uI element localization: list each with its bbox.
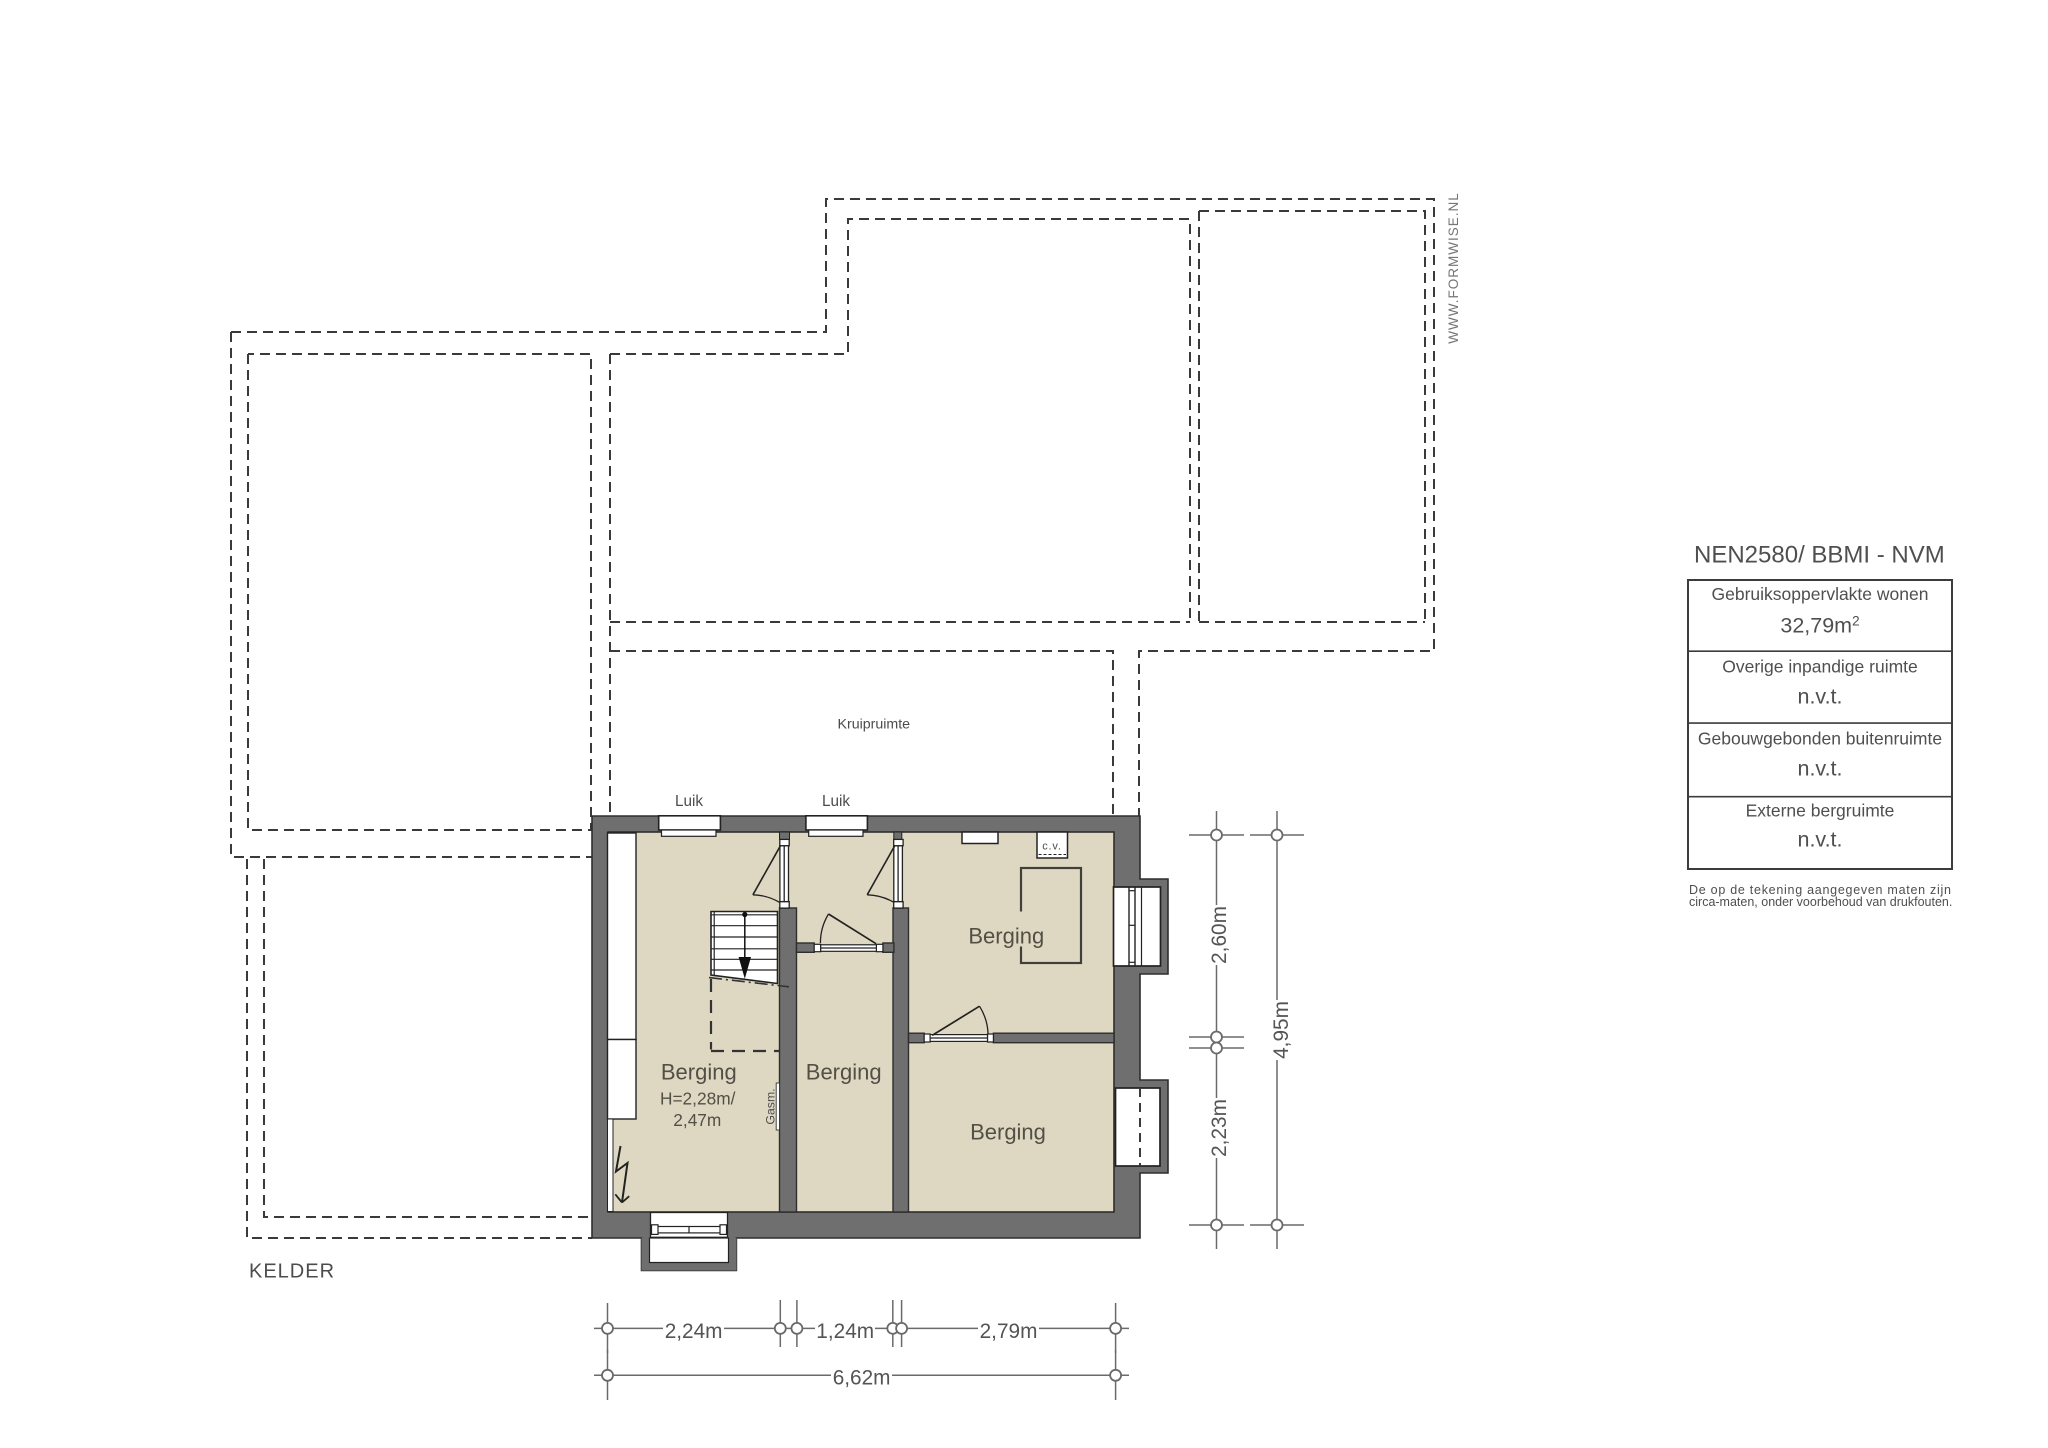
svg-text:32,79m2: 32,79m2 xyxy=(1780,614,1859,638)
svg-text:n.v.t.: n.v.t. xyxy=(1797,685,1842,709)
svg-text:Berging: Berging xyxy=(806,1060,882,1085)
svg-text:2,47m: 2,47m xyxy=(673,1110,721,1130)
svg-text:2,23m: 2,23m xyxy=(1208,1099,1231,1157)
svg-text:Overige inpandige ruimte: Overige inpandige ruimte xyxy=(1722,657,1918,677)
svg-text:Gebouwgebonden buitenruimte: Gebouwgebonden buitenruimte xyxy=(1698,728,1942,748)
svg-text:Luik: Luik xyxy=(822,793,850,810)
svg-text:2,60m: 2,60m xyxy=(1208,906,1231,964)
svg-text:n.v.t.: n.v.t. xyxy=(1797,757,1842,781)
svg-text:6,62m: 6,62m xyxy=(833,1367,891,1390)
svg-text:c.v.: c.v. xyxy=(1042,841,1062,853)
svg-text:Berging: Berging xyxy=(661,1060,737,1085)
svg-text:circa-maten, onder voorbehoud: circa-maten, onder voorbehoud van drukfo… xyxy=(1689,895,1952,909)
svg-text:1,24m: 1,24m xyxy=(816,1320,874,1343)
svg-text:Luik: Luik xyxy=(675,793,703,810)
svg-text:Externe bergruimte: Externe bergruimte xyxy=(1746,801,1895,821)
svg-text:Berging: Berging xyxy=(968,924,1044,949)
svg-text:H=2,28m/: H=2,28m/ xyxy=(660,1089,736,1109)
svg-text:Kruipruimte: Kruipruimte xyxy=(838,717,911,733)
svg-text:NEN2580/ BBMI - NVM: NEN2580/ BBMI - NVM xyxy=(1694,542,1945,569)
svg-text:2,79m: 2,79m xyxy=(980,1320,1038,1343)
svg-text:KELDER: KELDER xyxy=(249,1261,335,1283)
svg-text:n.v.t.: n.v.t. xyxy=(1797,828,1842,852)
svg-text:Berging: Berging xyxy=(970,1119,1046,1144)
svg-text:4,95m: 4,95m xyxy=(1270,1001,1293,1059)
svg-text:WWW.FORMWISE.NL: WWW.FORMWISE.NL xyxy=(1446,192,1461,343)
svg-text:Gebruiksoppervlakte wonen: Gebruiksoppervlakte wonen xyxy=(1712,584,1929,604)
svg-text:2,24m: 2,24m xyxy=(665,1320,723,1343)
svg-text:Gasm.: Gasm. xyxy=(764,1088,778,1124)
